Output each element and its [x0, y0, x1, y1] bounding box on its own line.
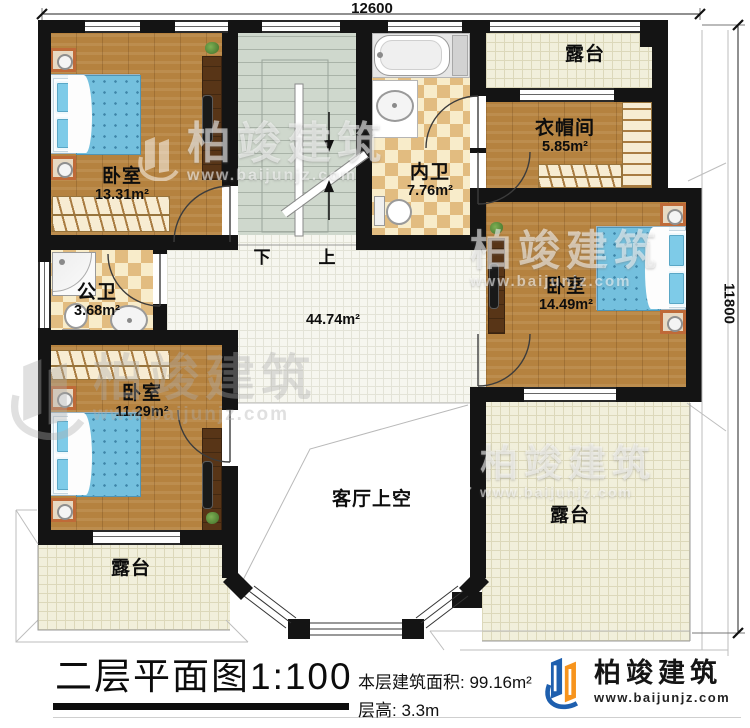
wall-segment	[652, 20, 668, 190]
wardrobe-symbol	[622, 102, 652, 188]
room-label-public-bath: 公卫 3.68m²	[74, 282, 120, 320]
brand-name: 柏竣建筑	[594, 660, 730, 687]
brand-logo: 柏竣建筑 www.baijunjz.com	[538, 652, 748, 712]
floor-area-info: 本层建筑面积: 99.16m²	[358, 668, 532, 693]
wall-segment	[222, 330, 238, 410]
window-symbol	[262, 20, 340, 33]
terrace-railing	[490, 20, 640, 33]
room-label-living-void: 客厅上空	[332, 489, 412, 510]
nightstand-symbol	[50, 48, 76, 72]
wall-segment	[470, 148, 486, 153]
wall-segment	[470, 20, 486, 96]
bath-panel	[452, 35, 468, 76]
room-label-bedroom-right: 卧室 14.49m²	[539, 276, 593, 314]
floorplan-canvas: 12600 11800	[0, 0, 750, 728]
wall-segment	[38, 330, 238, 345]
brand-text: 柏竣建筑 www.baijunjz.com	[594, 660, 730, 705]
bed-symbol	[50, 74, 140, 154]
nightstand-symbol	[50, 498, 76, 522]
wall-segment	[470, 188, 702, 202]
floor-height-info: 层高: 3.3m	[358, 696, 439, 721]
wardrobe-symbol	[50, 350, 170, 380]
plan-title: 二层平面图1:100	[55, 646, 353, 700]
bay-post	[288, 619, 310, 639]
nightstand-symbol	[660, 203, 686, 226]
monitor-icon	[490, 264, 498, 308]
floor-height-value: 3.3m	[401, 701, 439, 720]
stairs-up-label: 上	[319, 243, 336, 268]
floor-height-label: 层高:	[358, 701, 397, 720]
plan-scale: 1:100	[250, 656, 353, 697]
terrace-door-symbol	[93, 530, 180, 545]
wall-segment	[356, 20, 372, 250]
wall-segment	[180, 530, 238, 545]
lamp-icon	[57, 504, 73, 520]
room-label-terrace-top: 露台	[565, 44, 605, 65]
bed-symbol	[50, 412, 140, 496]
wall-segment	[470, 200, 486, 235]
sheet-fold	[68, 413, 92, 495]
monitor-icon	[203, 462, 212, 508]
wardrobe-rod	[53, 214, 169, 216]
room-label-terrace-bottom-right: 露台	[550, 505, 590, 526]
nightstand-symbol	[50, 156, 76, 180]
wall-segment	[38, 235, 238, 250]
wall-segment	[616, 387, 702, 402]
room-label-inner-bath: 内卫 7.76m²	[407, 162, 453, 200]
floor-living-void	[238, 403, 470, 620]
wall-segment	[222, 466, 238, 578]
sheet-fold	[645, 227, 669, 309]
wall-segment	[614, 88, 652, 102]
terrace-door-symbol	[524, 387, 616, 402]
bed-symbol	[596, 226, 686, 310]
wall-segment	[153, 250, 167, 254]
lamp-icon	[57, 54, 73, 70]
window-symbol	[175, 20, 228, 33]
wall-segment	[38, 530, 93, 545]
bay-post	[402, 619, 424, 639]
drain-icon	[392, 103, 397, 108]
bay-glazing	[310, 623, 402, 635]
wardrobe-rod	[51, 365, 169, 367]
wall-segment	[356, 235, 486, 250]
lamp-icon	[667, 316, 683, 332]
wall-segment	[486, 88, 520, 102]
toilet-symbol	[386, 199, 412, 225]
lamp-icon	[57, 162, 73, 178]
room-label-bedroom-bottom: 卧室 11.29m²	[115, 383, 168, 421]
lamp-icon	[57, 392, 73, 408]
wall-segment	[686, 202, 702, 402]
clothes-rack-symbol	[538, 164, 622, 188]
title-underline	[53, 703, 349, 710]
wall-segment	[470, 402, 486, 578]
bathtub-inner	[380, 40, 442, 70]
room-label-hall-area: 44.74m²	[306, 312, 360, 328]
brand-logo-icon	[538, 652, 588, 712]
window-symbol	[85, 20, 140, 33]
room-label-terrace-bottom-left: 露台	[111, 558, 151, 579]
pillow-icon	[667, 271, 686, 306]
pillow-icon	[667, 233, 686, 268]
brand-website: www.baijunjz.com	[594, 690, 730, 705]
nightstand-symbol	[50, 386, 76, 410]
drain-icon	[127, 318, 132, 323]
window-symbol	[388, 20, 462, 33]
dimension-top-label: 12600	[340, 0, 404, 17]
wardrobe-rod	[539, 176, 621, 178]
sheet-fold	[68, 75, 92, 153]
toilet-tank	[374, 196, 385, 226]
wall-segment	[222, 20, 238, 186]
terrace-door-symbol	[520, 88, 614, 102]
stairs-down-label: 下	[254, 243, 271, 268]
dimension-right-label: 11800	[721, 281, 738, 327]
room-label-cloakroom: 衣帽间 5.85m²	[535, 118, 595, 156]
faucet-icon	[377, 52, 383, 58]
plan-title-text: 二层平面图	[55, 656, 250, 697]
wall-segment	[470, 387, 524, 402]
room-label-bedroom-top-left: 卧室 13.31m²	[95, 166, 149, 204]
floor-area-label: 本层建筑面积:	[358, 673, 465, 692]
wall-segment	[452, 592, 482, 608]
showerhead-icon	[59, 259, 65, 265]
floor-staircase	[238, 33, 356, 245]
monitor-icon	[203, 96, 212, 142]
window-symbol	[38, 262, 51, 328]
floor-area-value: 99.16m²	[469, 673, 531, 692]
nightstand-symbol	[660, 310, 686, 334]
lamp-icon	[667, 209, 683, 225]
